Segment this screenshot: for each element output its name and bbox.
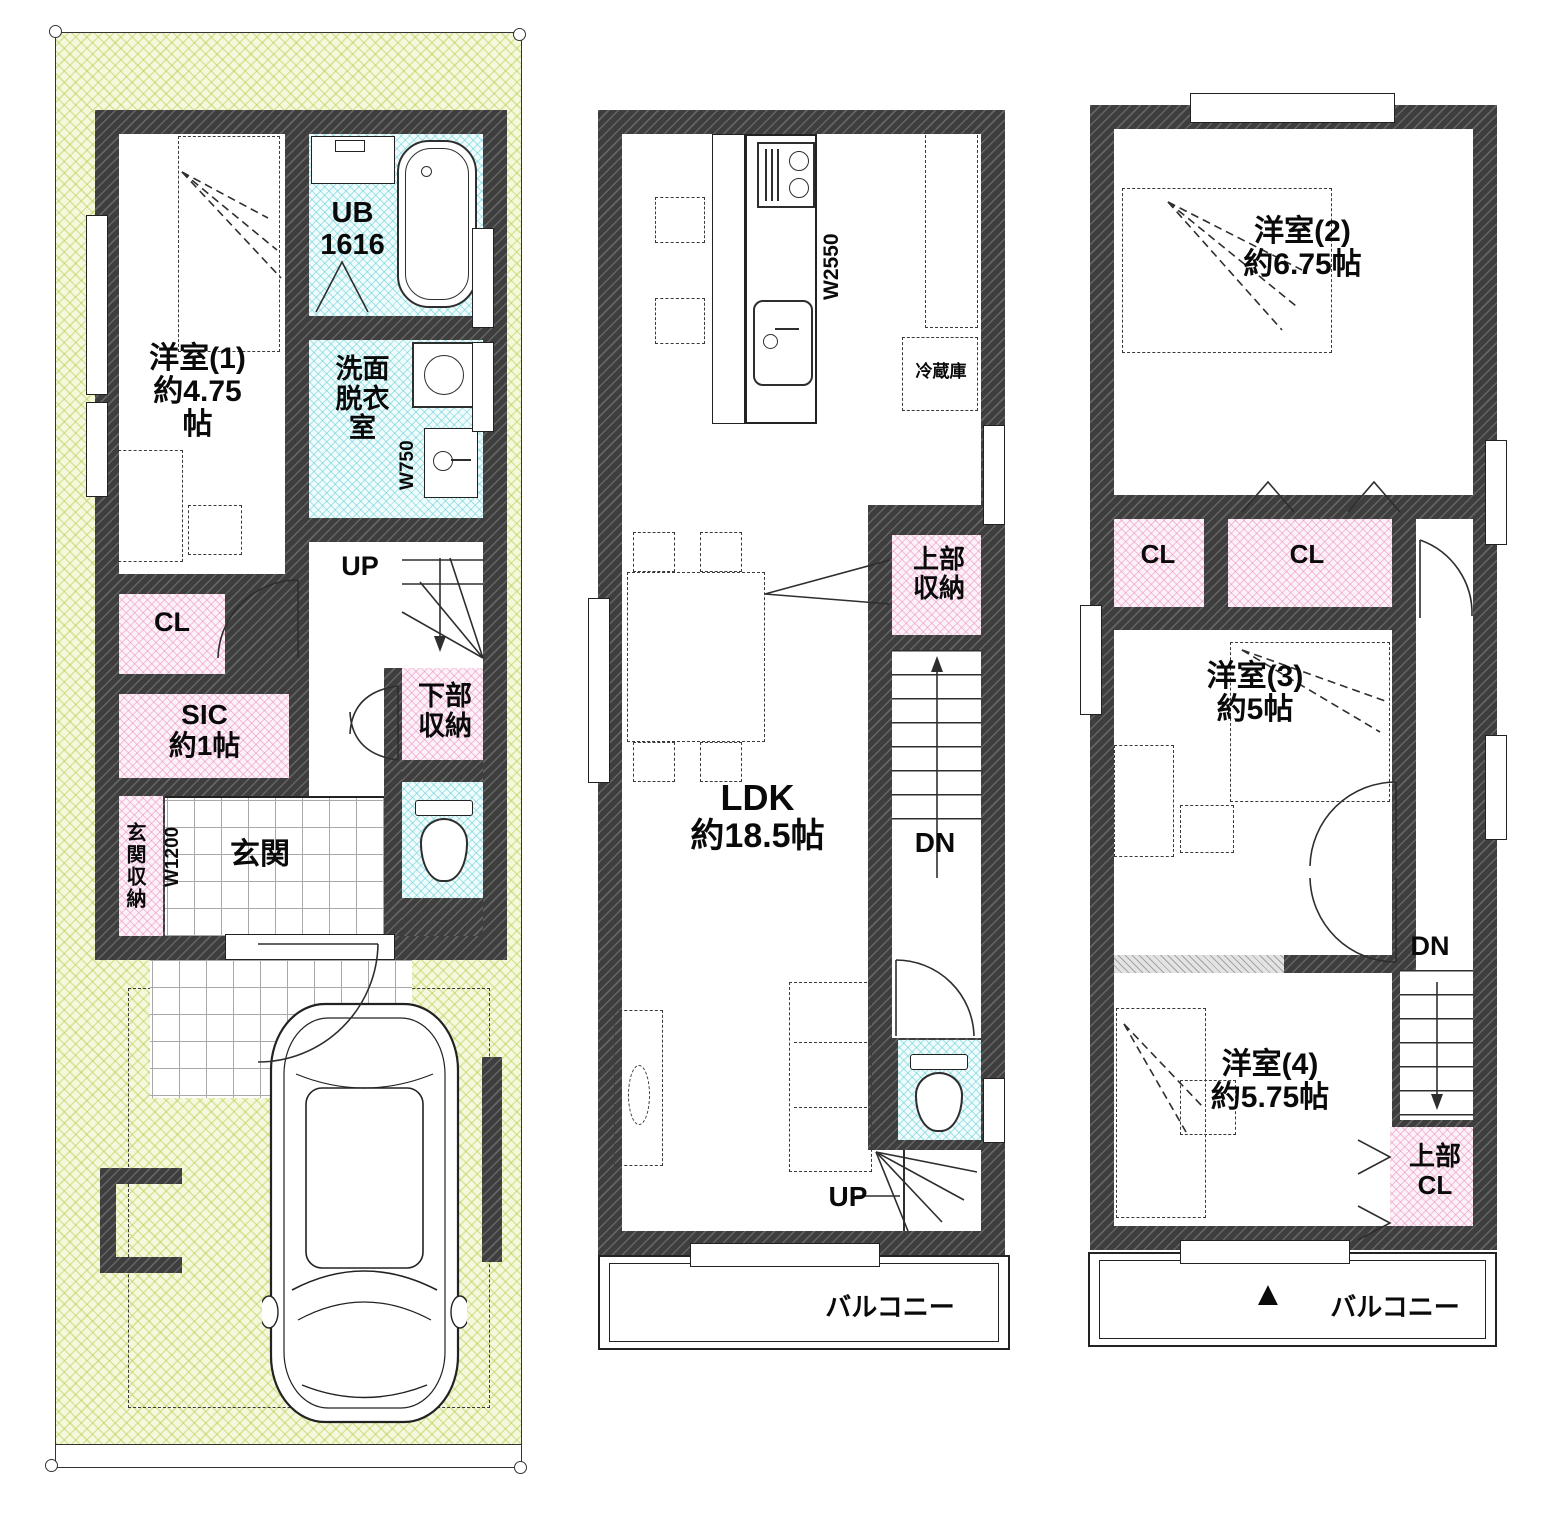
room-label-sic: SIC 約1帖 <box>122 700 287 762</box>
entrance-sliding-door <box>225 934 395 960</box>
dim-label-w2550: W2550 <box>820 212 843 322</box>
toilet-tank <box>910 1054 968 1070</box>
survey-marker <box>45 1459 58 1472</box>
stairs-dn-label-2f: DN <box>905 828 965 859</box>
wall-stub <box>402 760 483 782</box>
corridor-3f <box>1416 519 1473 970</box>
floor-divider <box>1114 955 1284 973</box>
garden-wall-bottom <box>100 1257 182 1273</box>
dim-label-w1200: W1200 <box>163 802 184 912</box>
window <box>983 1078 1005 1143</box>
room-label-genkan: 玄関 <box>195 838 325 871</box>
window <box>86 402 108 497</box>
counter-chair <box>655 298 705 344</box>
survey-marker <box>513 28 526 41</box>
stairs-up-2f <box>868 1150 981 1231</box>
dim-label-w750: W750 <box>398 428 419 503</box>
room-label-under-stairs: 下部 収納 <box>400 682 490 741</box>
window <box>1190 93 1395 123</box>
room-label-washroom: 洗面 脱衣 室 <box>315 355 410 444</box>
room-label-closet-1f: CL <box>132 608 212 638</box>
counter-chair <box>655 197 705 243</box>
room-label-upper-storage-2f: 上部 収納 <box>895 545 983 602</box>
stairs-dn-label-3f: DN <box>1400 932 1460 962</box>
sofa-cushion-line <box>794 1107 867 1108</box>
room-label-entrance-storage: 玄関収納 <box>123 802 145 930</box>
car-icon <box>262 990 467 1435</box>
room-label-closet2-3f: CL <box>1262 540 1352 569</box>
washing-machine <box>412 342 476 408</box>
room-label-ldk: LDK 約18.5帖 <box>640 778 875 855</box>
balcony-label-3f: バルコニー <box>1300 1293 1490 1322</box>
kitchen-sink <box>753 300 813 386</box>
window <box>472 342 494 432</box>
window <box>86 215 108 395</box>
stairs-down-3f <box>1400 970 1473 1120</box>
bed1-outline <box>178 136 280 352</box>
balcony-label-2f: バルコニー <box>790 1293 990 1322</box>
room-label-bedroom3: 洋室(3) 約5帖 <box>1155 660 1355 726</box>
stairs-up-label-1f: UP <box>330 552 390 582</box>
survey-marker <box>514 1461 527 1474</box>
room-label-unit-bath: UB 1616 <box>305 198 400 262</box>
bathtub <box>397 140 477 308</box>
toilet-tank <box>415 800 473 816</box>
kitchen-bench <box>712 134 745 424</box>
dining-chair <box>700 532 742 572</box>
room-label-upper-closet-3f: 上部 CL <box>1395 1142 1475 1199</box>
room-label-bedroom2: 洋室(2) 約6.75帖 <box>1185 215 1420 281</box>
desk-dash <box>188 505 242 555</box>
wall-stub <box>402 898 483 936</box>
road-strip <box>56 1445 521 1467</box>
dining-chair <box>700 742 742 782</box>
sofa-cushion-line <box>794 1042 867 1043</box>
bath-counter-handle <box>335 140 365 152</box>
balcony-sliding-door <box>690 1243 880 1267</box>
room-label-bedroom4: 洋室(4) 約5.75帖 <box>1160 1048 1380 1114</box>
house-2f <box>598 110 1005 1255</box>
dining-chair <box>633 532 675 572</box>
survey-marker <box>49 25 62 38</box>
fridge-label: 冷蔵庫 <box>903 363 979 382</box>
floor-plan-canvas: 洋室(1) 約4.75 帖 UB 1616 洗面 脱衣 室 W750 UP CL… <box>0 0 1545 1529</box>
chair-dash <box>1180 805 1234 853</box>
desk-dash <box>1114 745 1174 857</box>
garden-wall-right <box>482 1057 502 1262</box>
sofa <box>789 982 872 1172</box>
window <box>472 228 494 328</box>
room-label-closet1-3f: CL <box>1118 540 1198 569</box>
dining-table <box>627 572 765 742</box>
closet-dash <box>113 450 183 562</box>
window <box>1485 735 1507 840</box>
stairs-down-2f <box>892 650 981 825</box>
vanity-sink <box>424 428 478 498</box>
window <box>1080 605 1102 715</box>
stove <box>757 142 815 208</box>
tv-oval <box>628 1065 650 1125</box>
window <box>588 598 610 783</box>
house-1f <box>95 110 507 960</box>
stairs-up-label-2f: UP <box>818 1182 878 1213</box>
window <box>1485 440 1507 545</box>
north-triangle-marker: ▲ <box>1238 1276 1298 1313</box>
cupboard <box>925 130 978 328</box>
balcony-sliding-door <box>1180 1240 1350 1264</box>
dining-chair <box>633 742 675 782</box>
stair-divider <box>903 1150 905 1231</box>
window <box>983 425 1005 525</box>
room-label-bedroom1: 洋室(1) 約4.75 帖 <box>130 342 265 441</box>
